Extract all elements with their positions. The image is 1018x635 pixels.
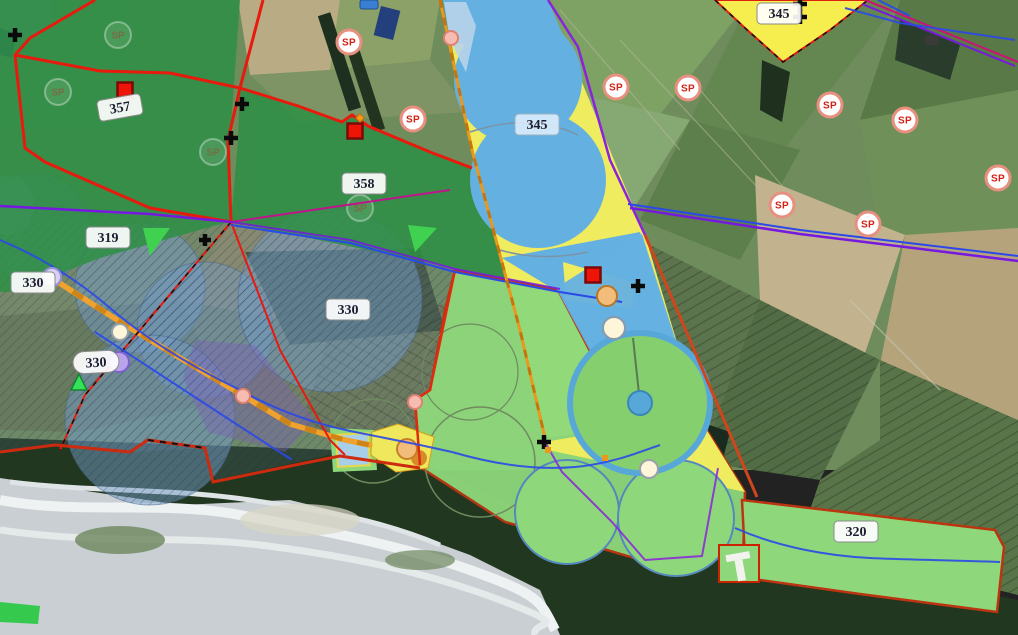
tan-circle-marker[interactable]: [597, 286, 617, 306]
parcel-label-330-mid: 330: [326, 299, 370, 320]
gis-map-canvas[interactable]: SP SP SP SP: [0, 0, 1018, 635]
svg-text:SP: SP: [406, 115, 420, 126]
svg-text:330: 330: [23, 276, 44, 291]
blue-tag-marker[interactable]: [360, 0, 378, 9]
svg-text:SP: SP: [861, 220, 875, 231]
sp-badge[interactable]: SP: [818, 93, 842, 117]
sp-badge[interactable]: SP: [604, 75, 628, 99]
pink-circle-marker[interactable]: [236, 389, 250, 403]
sp-badge[interactable]: SP: [770, 193, 794, 217]
svg-text:SP: SP: [51, 88, 65, 99]
pink-circle-marker[interactable]: [408, 395, 422, 409]
svg-text:319: 319: [98, 231, 119, 246]
sp-badge[interactable]: SP: [986, 166, 1010, 190]
parcel-label-330-road: 330: [72, 350, 119, 374]
cream-circle-marker[interactable]: [640, 460, 658, 478]
svg-text:330: 330: [338, 303, 359, 318]
svg-text:330: 330: [85, 355, 107, 371]
cream-circle-marker[interactable]: [112, 324, 128, 340]
parcel-label-320: 320: [834, 521, 878, 542]
parcel-label-330-left: 330: [11, 272, 55, 293]
map-viewport[interactable]: SP SP SP SP: [0, 0, 1018, 635]
parcel-label-345-band: 345: [515, 114, 559, 135]
pivot-center: [628, 391, 652, 415]
sp-badge[interactable]: SP: [856, 212, 880, 236]
parcel-label-345-ne: 345: [757, 3, 801, 24]
svg-text:SP: SP: [823, 101, 837, 112]
orange-square-marker[interactable]: [602, 455, 608, 461]
sp-badge[interactable]: SP: [676, 76, 700, 100]
sp-badge[interactable]: SP: [401, 107, 425, 131]
cream-circle-marker[interactable]: [603, 317, 625, 339]
svg-text:SP: SP: [991, 174, 1005, 185]
svg-text:345: 345: [527, 118, 548, 133]
svg-text:345: 345: [769, 7, 790, 22]
svg-text:SP: SP: [206, 148, 220, 159]
svg-text:SP: SP: [342, 38, 356, 49]
svg-text:SP: SP: [898, 116, 912, 127]
svg-text:SP: SP: [681, 84, 695, 95]
svg-text:SP: SP: [353, 204, 367, 215]
svg-text:320: 320: [846, 525, 867, 540]
svg-text:358: 358: [354, 177, 375, 192]
svg-text:SP: SP: [775, 201, 789, 212]
sp-badge[interactable]: SP: [337, 30, 361, 54]
orange-square-marker[interactable]: [545, 447, 551, 453]
sp-badge[interactable]: SP: [893, 108, 917, 132]
parcel-label-358: 358: [342, 173, 386, 194]
parcel-label-319: 319: [86, 227, 130, 248]
pink-circle-marker[interactable]: [444, 31, 458, 45]
svg-text:SP: SP: [111, 31, 125, 42]
svg-text:SP: SP: [609, 83, 623, 94]
